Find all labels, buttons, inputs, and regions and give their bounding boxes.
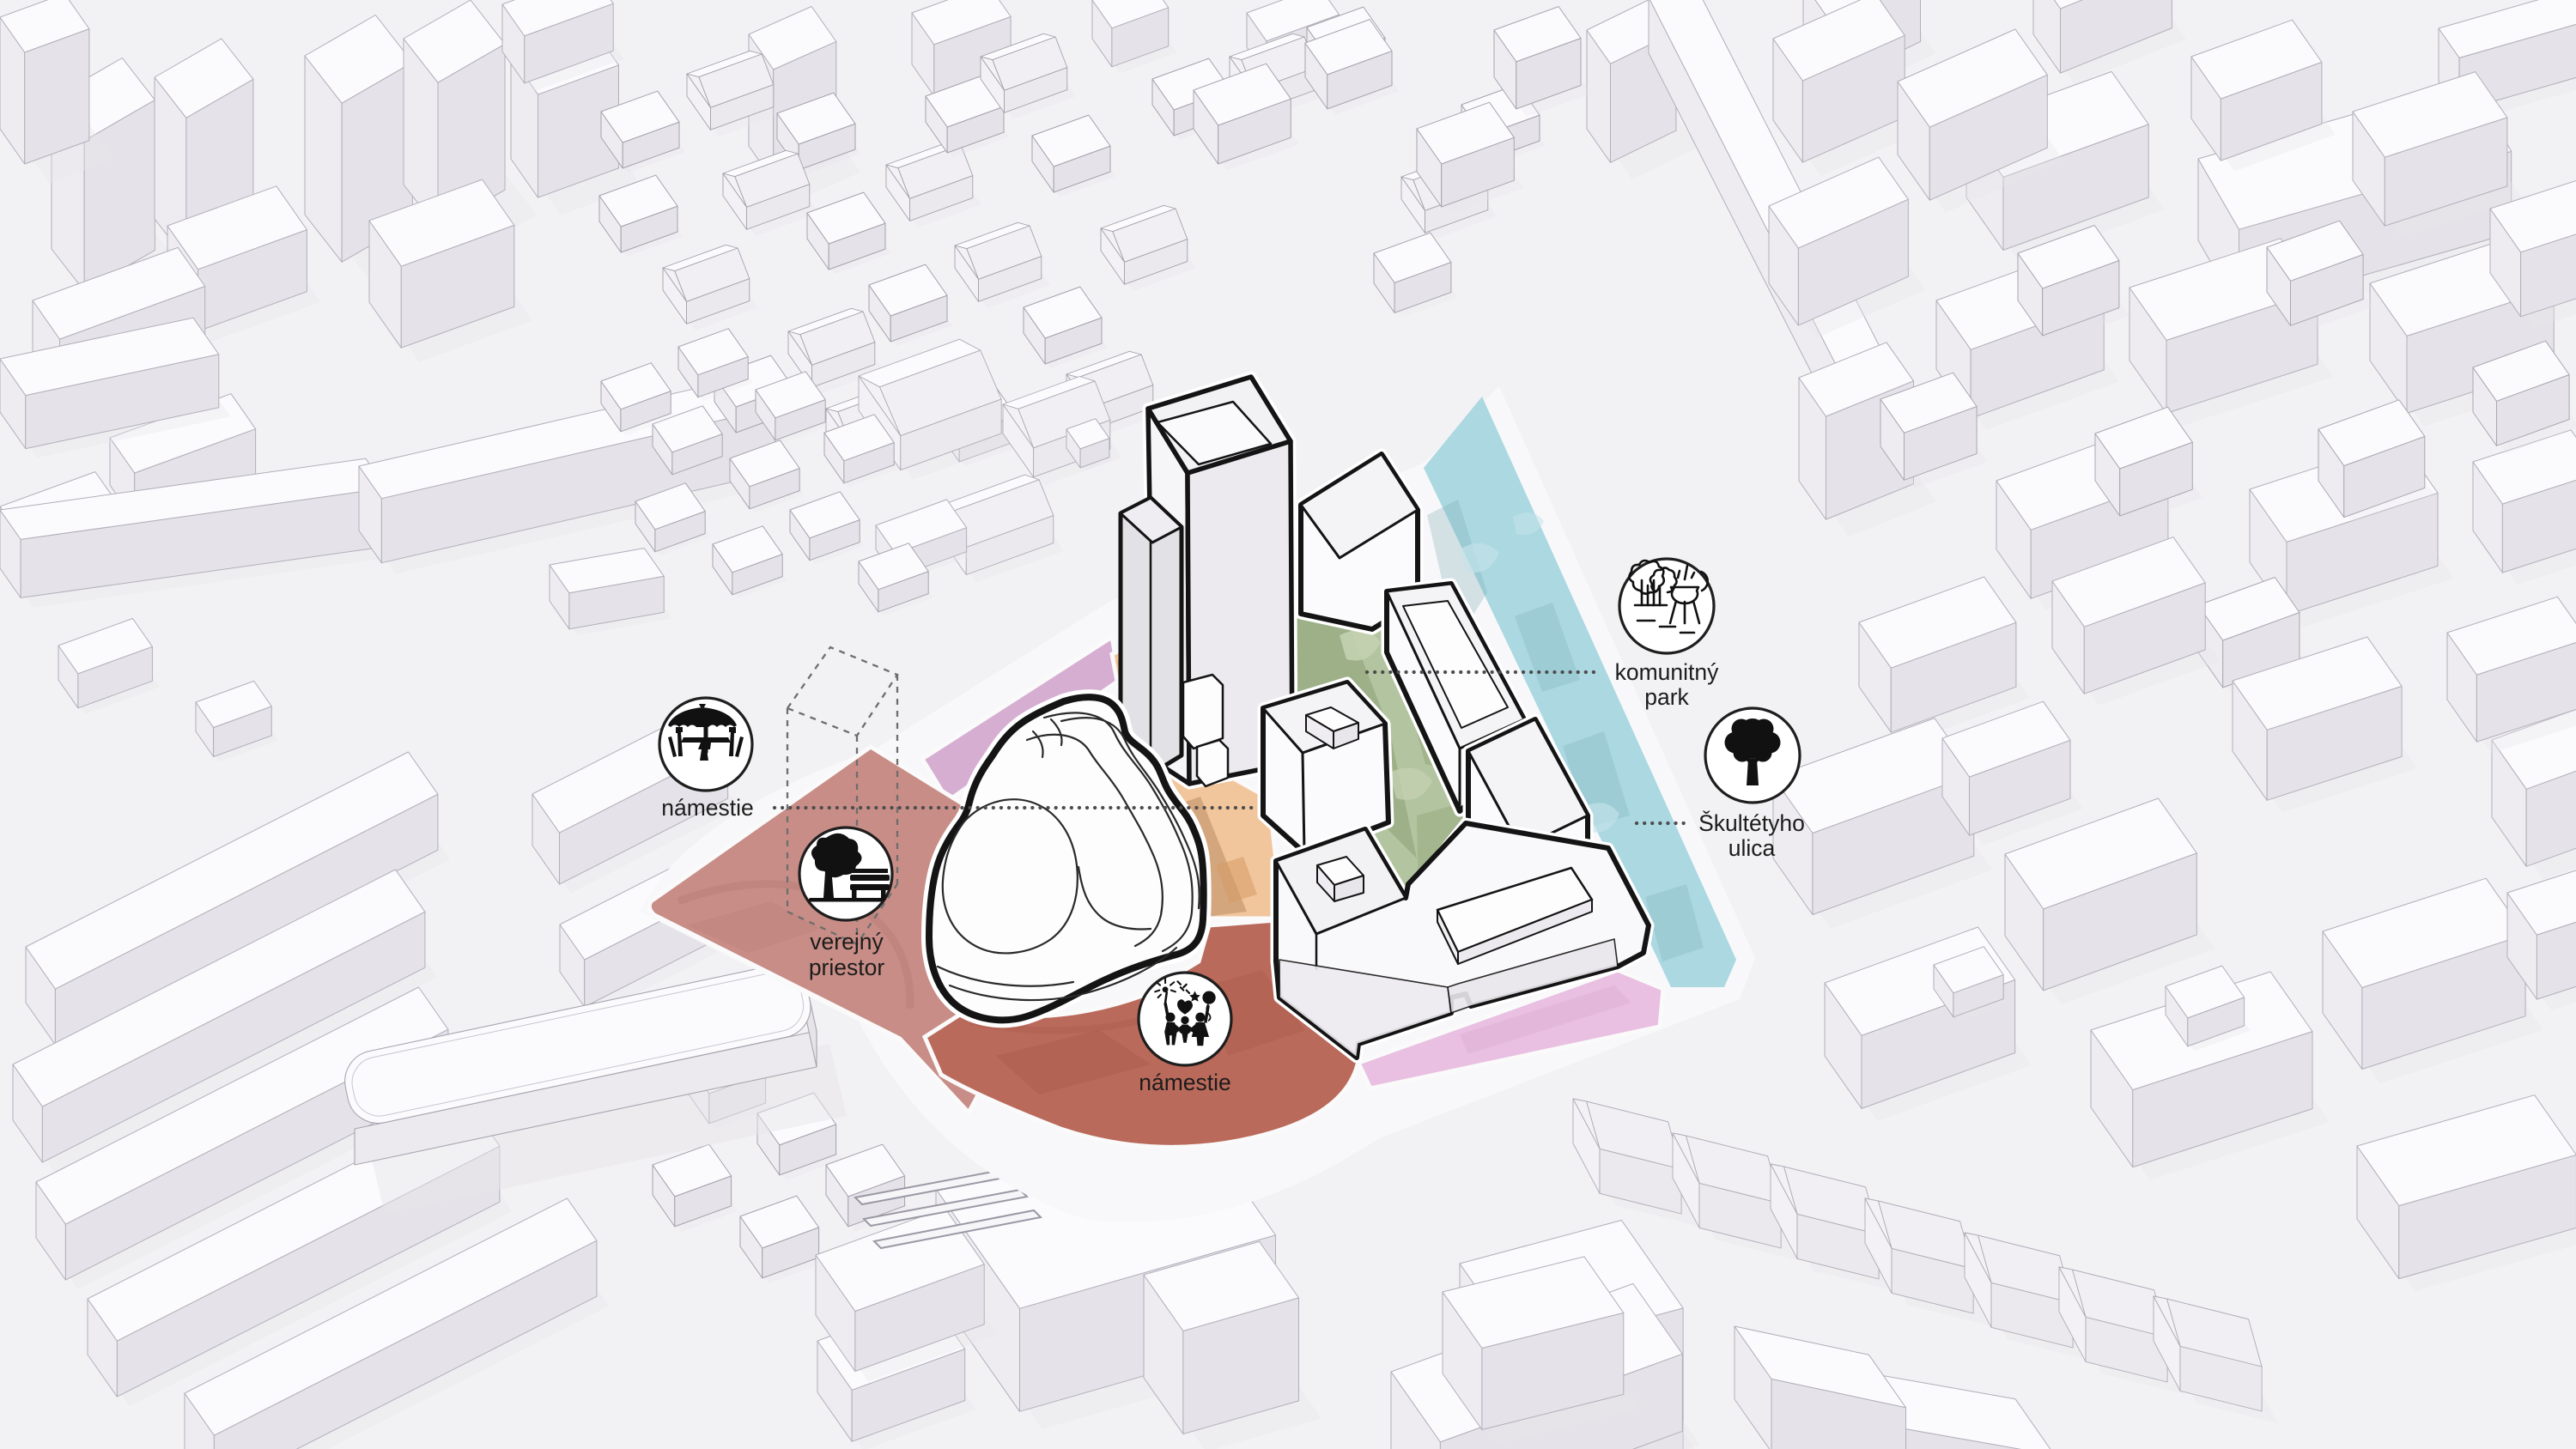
svg-text:Škultétyho: Škultétyho — [1698, 810, 1805, 836]
svg-text:verejný: verejný — [810, 929, 884, 955]
svg-text:komunitný: komunitný — [1615, 659, 1720, 685]
svg-text:park: park — [1644, 684, 1689, 710]
svg-text:námestie: námestie — [1139, 1070, 1231, 1095]
svg-text:námestie: námestie — [661, 795, 754, 821]
svg-text:ulica: ulica — [1728, 835, 1776, 861]
svg-text:priestor: priestor — [809, 955, 885, 980]
